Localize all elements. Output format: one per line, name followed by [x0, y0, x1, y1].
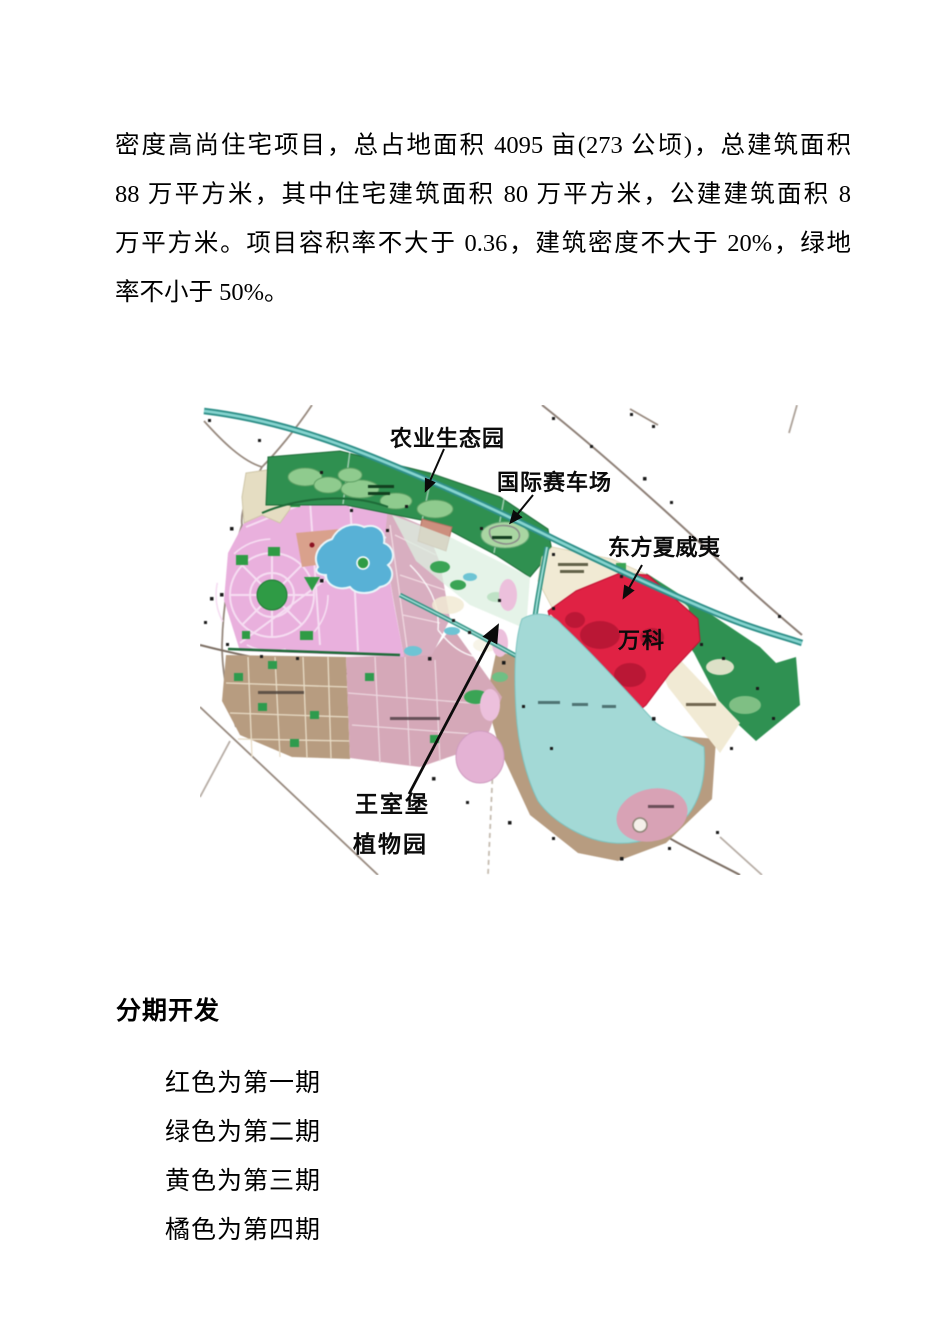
map-label-hawaii: 东方夏威夷 — [608, 535, 721, 560]
map-label-racing: 国际赛车场 — [497, 470, 612, 495]
map-label-vanke: 万科 — [617, 628, 666, 653]
map-label-agri-park: 农业生态园 — [389, 426, 505, 451]
paragraph-line: 万平方米。项目容积率不大于 0.36，建筑密度不大于 20%，绿地 — [115, 219, 851, 268]
phase-list-item: 绿色为第二期 — [165, 1112, 321, 1161]
section-heading-phased-development: 分期开发 — [116, 991, 220, 1027]
intro-paragraph: 密度高尚住宅项目，总占地面积 4095 亩(273 公顷)，总建筑面积 88 万… — [115, 121, 851, 317]
phase-list-item: 红色为第一期 — [165, 1063, 321, 1112]
phase-list: 红色为第一期 绿色为第二期 黄色为第三期 橘色为第四期 — [165, 1063, 321, 1259]
document-page: 密度高尚住宅项目，总占地面积 4095 亩(273 公顷)，总建筑面积 88 万… — [0, 0, 950, 1344]
phase-list-item: 黄色为第三期 — [165, 1161, 321, 1210]
phase-list-item: 橘色为第四期 — [165, 1210, 321, 1259]
paragraph-line: 率不小于 50%。 — [115, 268, 851, 317]
map-label-royal-castle: 王室堡 — [355, 791, 430, 817]
paragraph-line: 88 万平方米，其中住宅建筑面积 80 万平方米，公建建筑面积 8 — [115, 170, 851, 219]
paragraph-line: 密度高尚住宅项目，总占地面积 4095 亩(273 公顷)，总建筑面积 — [115, 121, 851, 170]
planning-map-image: 农业生态园 国际赛车场 东方夏威夷 万科 王室堡 植物园 — [200, 405, 805, 875]
map-label-botanical: 植物园 — [353, 831, 428, 857]
